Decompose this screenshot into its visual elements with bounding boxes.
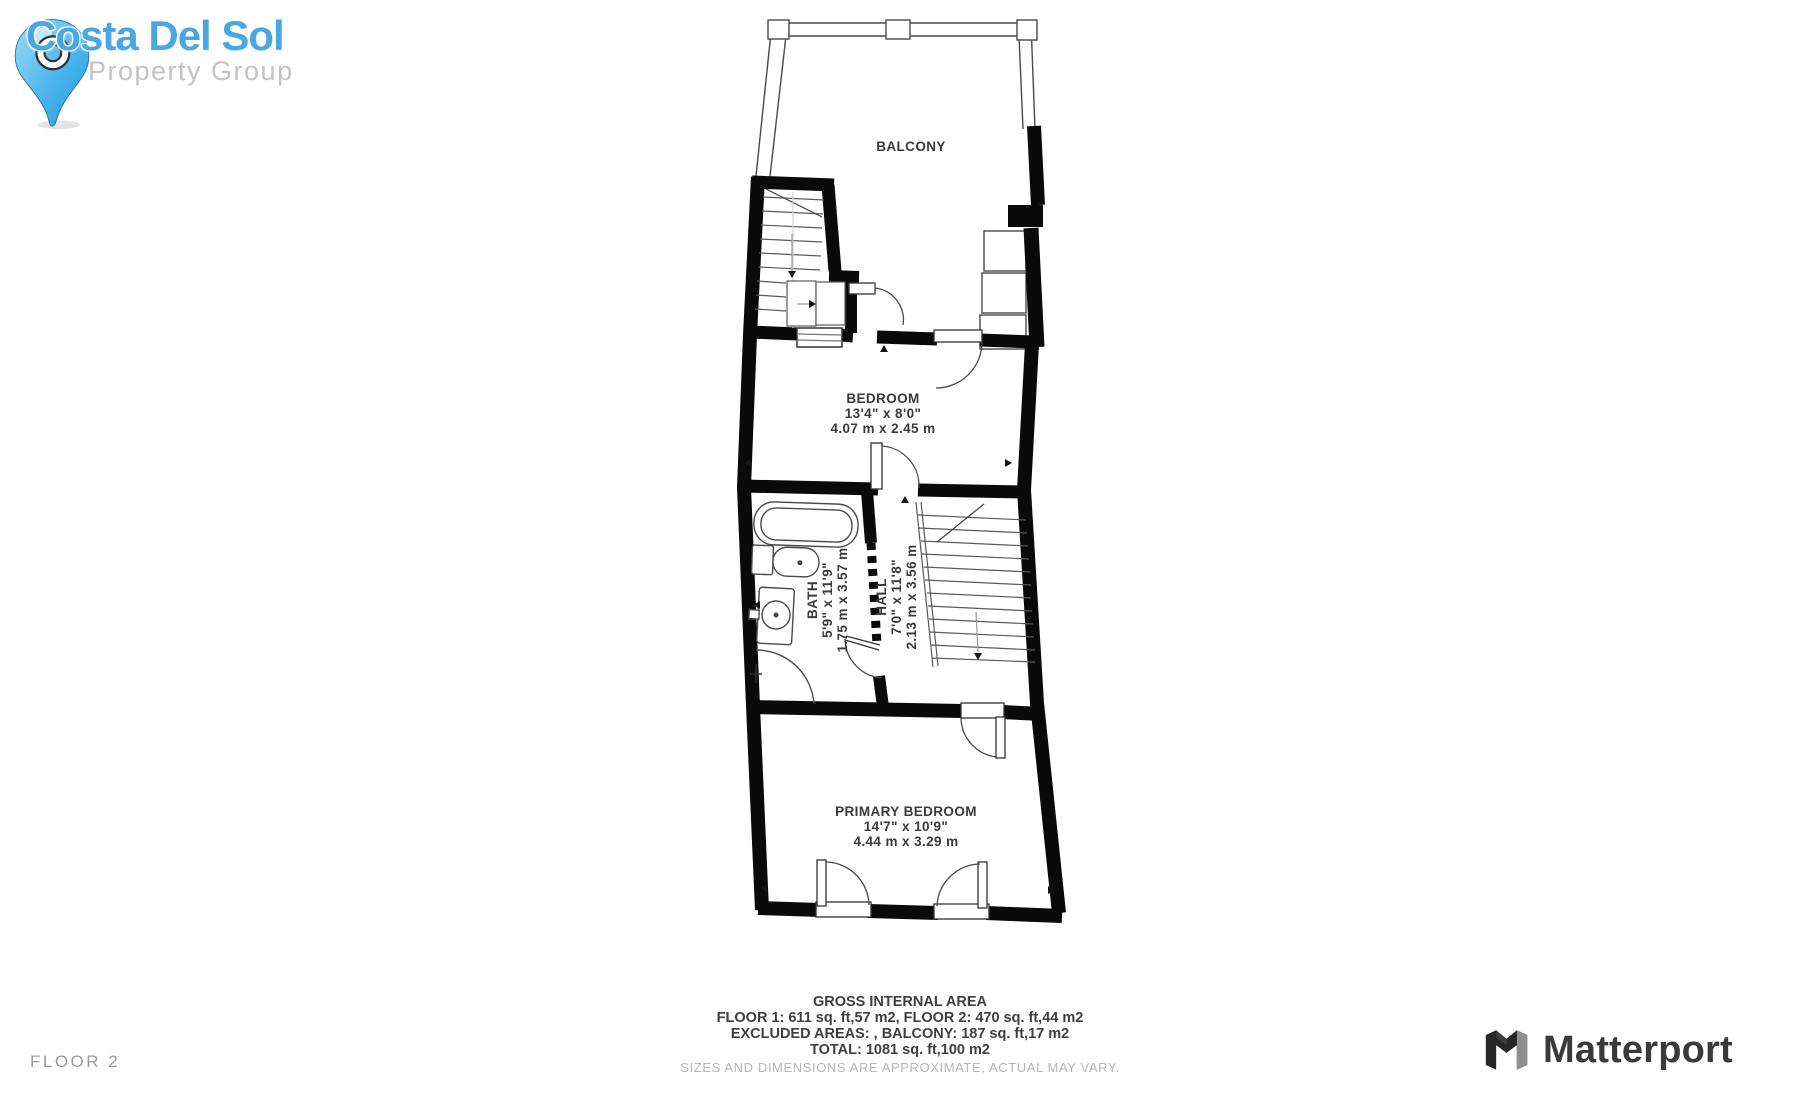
- primary-bedroom-label: PRIMARY BEDROOM 14'7" x 10'9" 4.44 m x 3…: [835, 804, 977, 849]
- svg-text:13'4" x 8'0": 13'4" x 8'0": [845, 406, 922, 421]
- floors-area-line: FLOOR 1: 611 sq. ft,57 m2, FLOOR 2: 470 …: [0, 1010, 1800, 1026]
- bathtub-icon: [753, 501, 858, 548]
- svg-text:14'7" x 10'9": 14'7" x 10'9": [864, 819, 948, 834]
- floorplan-page: { "branding": { "title": "Costa Del Sol"…: [0, 0, 1800, 1100]
- toilet-icon: [751, 545, 819, 577]
- agency-name: Costa Del Sol: [26, 12, 284, 60]
- window-bedroom: [797, 328, 842, 347]
- svg-text:4.44 m x 3.29 m: 4.44 m x 3.29 m: [853, 834, 958, 849]
- stairs-lower: [916, 502, 1035, 667]
- balcony-closets: [980, 231, 1026, 349]
- floor-plan: BALCONY BEDROOM 13'4" x 8'0" 4.07 m x 2.…: [680, 10, 1110, 930]
- agency-tagline: Property Group: [88, 56, 294, 87]
- bedroom-label: BEDROOM 13'4" x 8'0" 4.07 m x 2.45 m: [830, 391, 935, 436]
- svg-text:HALL: HALL: [874, 578, 889, 616]
- agency-logo: Costa Del Sol Property Group: [0, 0, 320, 140]
- svg-text:BATH: BATH: [805, 581, 820, 619]
- svg-text:1.75 m x 3.57 m: 1.75 m x 3.57 m: [835, 547, 850, 652]
- svg-text:7'0" x 11'8": 7'0" x 11'8": [889, 559, 904, 635]
- matterport-brand: Matterport: [1483, 1028, 1733, 1072]
- wall-step-block: [1008, 205, 1043, 227]
- svg-text:5'9" x 11'9": 5'9" x 11'9": [820, 562, 835, 638]
- svg-text:4.07 m x 2.45 m: 4.07 m x 2.45 m: [830, 421, 935, 436]
- floor-number-label: FLOOR 2: [30, 1052, 120, 1072]
- svg-text:BEDROOM: BEDROOM: [846, 391, 919, 406]
- matterport-label: Matterport: [1543, 1029, 1733, 1072]
- gross-area-title: GROSS INTERNAL AREA: [0, 994, 1800, 1010]
- matterport-m-icon: [1483, 1028, 1530, 1072]
- svg-text:2.13 m x 3.56 m: 2.13 m x 3.56 m: [904, 544, 919, 649]
- svg-text:PRIMARY BEDROOM: PRIMARY BEDROOM: [835, 804, 977, 819]
- shower-icon: [750, 650, 814, 704]
- balcony-label: BALCONY: [876, 139, 946, 154]
